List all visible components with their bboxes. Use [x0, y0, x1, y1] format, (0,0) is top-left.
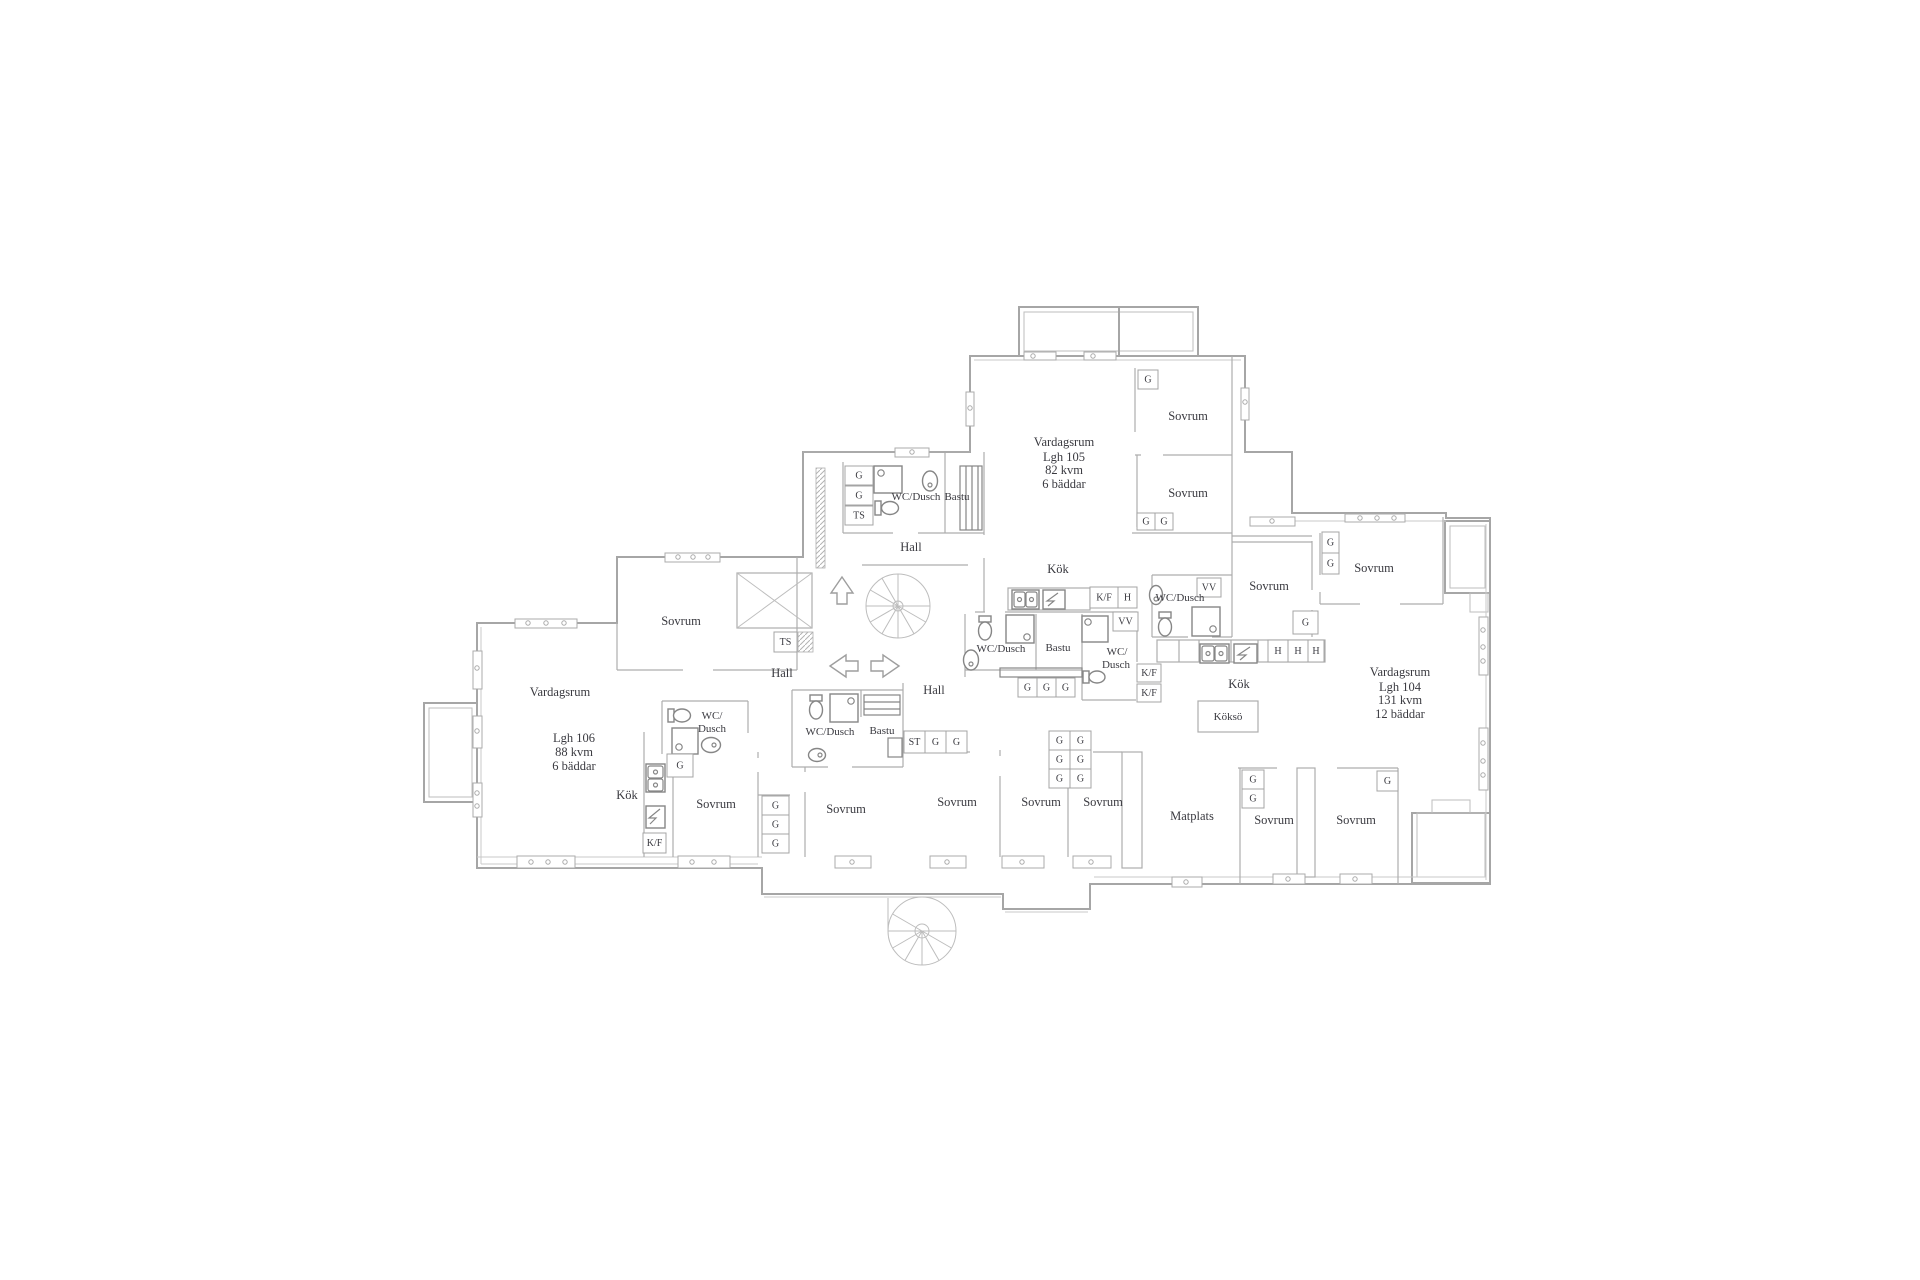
stove-icon	[1, 0, 665, 828]
window	[1084, 352, 1116, 360]
room-label: 6 bäddar	[1042, 477, 1086, 491]
cabinet-label: G	[1056, 736, 1063, 747]
cabinet-label: G	[1144, 375, 1151, 386]
window	[966, 392, 974, 426]
east-annex-step	[1470, 593, 1488, 612]
room-label: WC/Dusch	[806, 726, 855, 738]
east-annex	[1445, 521, 1490, 593]
shower-icon	[1082, 616, 1108, 642]
circulation	[737, 573, 956, 965]
room-label: 88 kvm	[555, 745, 593, 759]
room-label: Sovrum	[1254, 813, 1294, 827]
room-label: Sovrum	[826, 802, 866, 816]
window	[1340, 874, 1372, 884]
window	[1024, 352, 1056, 360]
cabinet-label: G	[1384, 776, 1391, 787]
room-label: WC/Dusch	[977, 643, 1026, 655]
window	[1273, 874, 1305, 884]
room-label: Vardagsrum	[1034, 435, 1095, 449]
room-label: 6 bäddar	[552, 759, 596, 773]
west-balcony-inner	[429, 708, 472, 797]
cabinet-label: K/F	[1096, 593, 1112, 604]
right-arrow-icon	[871, 655, 899, 677]
southeast-terrace	[1412, 813, 1490, 883]
room-label: Matplats	[1170, 809, 1214, 823]
cabinet-label: TS	[780, 637, 792, 648]
cabinet-label: G	[1056, 755, 1063, 766]
floor-plan-drawing: GGTSTSGGGGGGK/FHVVVVGGGK/FK/FHHHSTGGGGGG…	[0, 0, 1920, 1280]
north-balcony-inner	[1024, 312, 1193, 351]
room-label: WC/	[702, 710, 724, 722]
room-label: Sovrum	[696, 797, 736, 811]
room-label: Sovrum	[1168, 409, 1208, 423]
up-arrow-icon	[831, 577, 853, 604]
sauna-bench-icon	[1000, 668, 1082, 677]
window	[1250, 517, 1295, 526]
cabinet-label: ST	[909, 737, 921, 748]
room-label: Hall	[923, 683, 945, 697]
shower-icon	[1006, 615, 1034, 643]
cabinet-label: G	[1327, 538, 1334, 549]
cabinet-label: G	[953, 737, 960, 748]
window	[1241, 388, 1249, 420]
cabinet-label: G	[676, 761, 683, 772]
room-label: Köksö	[1214, 711, 1243, 723]
elevator	[737, 573, 812, 628]
window	[665, 553, 720, 562]
cabinet-label: TS	[853, 511, 865, 522]
room-label: Sovrum	[661, 614, 701, 628]
room-label: Kök	[1228, 677, 1250, 691]
window	[515, 619, 577, 628]
shaft-hatch	[798, 632, 813, 652]
room-label: Sovrum	[1249, 579, 1289, 593]
room-label: Hall	[900, 540, 922, 554]
toilet-icon	[1083, 671, 1105, 683]
room-label: Lgh 104	[1379, 680, 1422, 694]
room-label: 12 bäddar	[1375, 707, 1425, 721]
cabinet-label: H	[1294, 646, 1301, 657]
cabinet-label: H	[1312, 646, 1319, 657]
kitchen-sink-icon	[646, 764, 665, 792]
shower-icon	[1192, 607, 1220, 636]
window	[517, 856, 575, 868]
room-label: 131 kvm	[1378, 693, 1422, 707]
cabinet-label: G	[772, 820, 779, 831]
room-label: Lgh 105	[1043, 450, 1085, 464]
sink-icon	[923, 471, 938, 491]
window	[1479, 617, 1488, 675]
room-label: Bastu	[869, 725, 895, 737]
toilet-icon	[979, 616, 992, 640]
kitchen-sink-icon	[1200, 644, 1229, 663]
room-label: Dusch	[698, 723, 727, 735]
cabinet-label: VV	[1118, 617, 1133, 628]
room-label: WC/Dusch	[892, 491, 941, 503]
terrace-threshold	[1432, 800, 1470, 813]
window	[678, 856, 730, 868]
wall-pier	[1122, 752, 1142, 868]
spiral-stair-interior	[866, 574, 930, 638]
window	[930, 856, 966, 868]
toilet-icon	[668, 709, 691, 722]
room-label: Bastu	[1045, 642, 1071, 654]
room-label: WC/	[1107, 646, 1129, 658]
room-label: Sovrum	[1354, 561, 1394, 575]
cabinet-label: G	[1077, 736, 1084, 747]
cabinet-label: G	[855, 471, 862, 482]
room-label: Hall	[771, 666, 793, 680]
stove-icon	[1234, 644, 1257, 663]
window	[835, 856, 871, 868]
cabinet-label: G	[1249, 775, 1256, 786]
cabinet-label: G	[1024, 683, 1031, 694]
cabinet-label: H	[1274, 646, 1281, 657]
room-label: Vardagsrum	[530, 685, 591, 699]
window	[1002, 856, 1044, 868]
cabinet-label: K/F	[647, 838, 663, 849]
kitchen-sink-icon	[1012, 590, 1039, 609]
window	[473, 783, 482, 817]
window	[473, 716, 482, 748]
room-label: Kök	[616, 788, 638, 802]
room-label: Vardagsrum	[1370, 665, 1431, 679]
cabinet-label: G	[1327, 559, 1334, 570]
shower-icon	[830, 694, 858, 722]
sink-icon	[809, 749, 826, 762]
cabinet-label: G	[1249, 794, 1256, 805]
cabinet-label: K/F	[1141, 668, 1157, 679]
left-arrow-icon	[830, 655, 858, 677]
cabinet-label: G	[1077, 755, 1084, 766]
west-balcony	[424, 703, 477, 802]
shower-icon	[672, 728, 698, 754]
shower-icon	[874, 466, 902, 493]
window	[473, 651, 482, 689]
cabinet-label: G	[932, 737, 939, 748]
window	[1073, 856, 1111, 868]
room-label: Dusch	[1102, 659, 1131, 671]
southeast-terrace-inner	[1417, 813, 1485, 877]
sink-icon	[702, 738, 721, 753]
window	[1479, 728, 1488, 790]
window	[1172, 877, 1202, 887]
cabinet-label: G	[1043, 683, 1050, 694]
cabinet-label: G	[1142, 517, 1149, 528]
room-label: 82 kvm	[1045, 463, 1083, 477]
floor-plan-page: GGTSTSGGGGGGK/FHVVVVGGGK/FK/FHHHSTGGGGGG…	[0, 0, 1920, 1280]
cabinet-label: K/F	[1141, 688, 1157, 699]
room-label: Sovrum	[1336, 813, 1376, 827]
shaft-hatch	[816, 468, 825, 568]
room-label: Sovrum	[1083, 795, 1123, 809]
room-label: WC/Dusch	[1156, 592, 1205, 604]
toilet-icon	[810, 695, 823, 719]
cabinet-label: G	[1160, 517, 1167, 528]
cabinet-label: G	[855, 491, 862, 502]
spiral-stair-exterior	[888, 897, 956, 965]
wall-pier	[1297, 768, 1315, 877]
room-label: Sovrum	[937, 795, 977, 809]
cabinet-label: G	[772, 801, 779, 812]
cabinet-label: G	[1302, 618, 1309, 629]
window	[1345, 514, 1405, 522]
cabinet-label: G	[1056, 774, 1063, 785]
room-label: Kök	[1047, 562, 1069, 576]
east-annex-inner	[1450, 526, 1485, 588]
toilet-icon	[1159, 612, 1172, 636]
room-label: Bastu	[944, 491, 970, 503]
room-label: Sovrum	[1168, 486, 1208, 500]
toilet-icon	[875, 501, 899, 515]
window	[895, 448, 929, 457]
room-label: Sovrum	[1021, 795, 1061, 809]
room-label: Lgh 106	[553, 731, 595, 745]
cabinet-label: H	[1124, 593, 1131, 604]
fixtures	[1, 0, 1257, 828]
north-balcony	[1019, 307, 1198, 356]
cabinet-label: G	[1062, 683, 1069, 694]
cabinet-label: G	[1077, 774, 1084, 785]
stove-icon	[1043, 590, 1065, 609]
cabinet-label: G	[772, 839, 779, 850]
